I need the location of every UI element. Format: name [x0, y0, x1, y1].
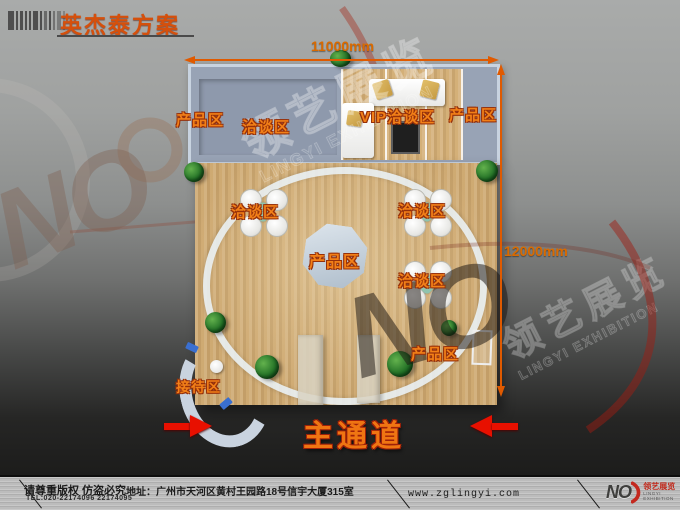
logo-swoosh-icon [631, 479, 641, 506]
dimension-top-label: 11000mm [311, 38, 374, 54]
zone-label-product-bottom-right: 产品区 [411, 343, 459, 364]
plant-icon [476, 160, 498, 182]
aisle-arrow-left-icon [492, 423, 518, 430]
title-underline [57, 35, 194, 37]
watermark-brand-en: LINGYI EXHIBITION [516, 287, 680, 382]
watermark-brand-cn: 领艺展览 [497, 250, 676, 369]
display-stand [357, 335, 380, 403]
plant-icon [387, 351, 413, 377]
watermark-no-left: NO [0, 127, 164, 287]
dimension-top-line [193, 59, 489, 61]
dimension-right-line [500, 72, 502, 388]
zone-label-meeting-top: 洽谈区 [242, 116, 290, 137]
dimension-arrow-right-icon [488, 56, 499, 64]
address-text: 地址：广州市天河区黄村王园路18号信宇大厦315室 [126, 483, 354, 498]
logo-brand-en: LINGYI EXHIBITION [643, 492, 680, 502]
zone-label-meeting-left: 洽谈区 [231, 201, 279, 222]
aisle-arrow-right-icon [164, 423, 190, 430]
booth-plan-page: NO 英杰泰方案 11000mm 12000mm [0, 0, 680, 510]
company-logo: NO 领艺展览 LINGYI EXHIBITION [606, 479, 680, 506]
plant-icon [441, 320, 457, 336]
watermark-brand-right: 领艺展览 LINGYI EXHIBITION [497, 250, 680, 382]
zone-label-vip-meeting: VIP洽谈区 [360, 106, 435, 127]
dimension-arrow-down-icon [497, 386, 505, 397]
footer-bar: 请尊重版权 仿盗必究 TEL:020-22174096 22174095 地址：… [0, 475, 680, 510]
aisle-arrow-left-head-icon [470, 415, 492, 437]
dimension-right-label: 12000mm [504, 243, 568, 259]
display-stand [298, 335, 323, 405]
door-icon [471, 330, 492, 366]
main-aisle-label: 主通道 [303, 411, 405, 455]
logo-no-text: NO [606, 482, 631, 503]
zone-label-meeting-right-lower: 洽谈区 [398, 270, 446, 291]
dimension-arrow-up-icon [497, 64, 505, 75]
plant-icon [184, 162, 204, 182]
telephone-text: TEL:020-22174096 22174095 [26, 495, 132, 502]
barcode-icon [8, 11, 67, 30]
zone-label-product-center: 产品区 [309, 248, 360, 272]
aisle-arrow-right-head-icon [190, 415, 212, 437]
zone-label-product-top-right: 产品区 [449, 104, 497, 125]
footer-divider [577, 480, 600, 509]
dimension-arrow-left-icon [184, 56, 195, 64]
chair-icon [210, 360, 223, 373]
website-text: www.zglingyi.com [408, 489, 520, 500]
footer-divider [387, 480, 410, 509]
zone-label-reception: 接待区 [176, 377, 221, 397]
plant-icon [205, 312, 226, 333]
zone-label-product-top-left: 产品区 [176, 109, 224, 130]
zone-label-meeting-right-upper: 洽谈区 [398, 200, 446, 221]
